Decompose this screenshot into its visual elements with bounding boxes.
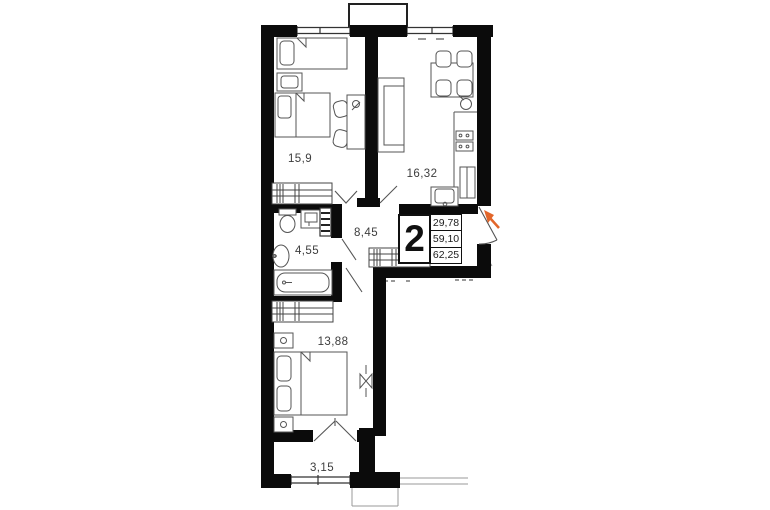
area-label-hallway: 8,45 xyxy=(354,227,378,239)
bedroom-wardrobe-icon xyxy=(272,301,333,322)
area-label-bedroom-1: 15,9 xyxy=(288,153,312,165)
rooms-count: 2 xyxy=(398,214,431,264)
apartment-summary-badge: 2 29,78 59,10 62,25 xyxy=(398,214,462,264)
nightstand-icon xyxy=(274,417,293,432)
nightstand-icon xyxy=(277,73,302,91)
child-bed-icon xyxy=(275,93,330,137)
bathroom-sink-icon xyxy=(272,245,289,267)
desk-icon xyxy=(332,95,365,149)
wardrobe-icon xyxy=(272,183,332,204)
area-label-bedroom-2: 13,88 xyxy=(318,336,349,348)
area-summary-row: 62,25 xyxy=(431,248,461,263)
toilet-icon xyxy=(279,209,296,233)
washing-machine-icon xyxy=(301,210,321,228)
bathtub-icon xyxy=(274,270,332,295)
area-summary-row: 59,10 xyxy=(431,231,461,247)
dining-table-icon xyxy=(431,51,473,97)
area-label-kitchen-living-room: 16,32 xyxy=(407,168,438,180)
entrance-arrow-icon xyxy=(484,210,499,228)
radiator-valve-icon xyxy=(360,365,372,397)
fridge-icon xyxy=(460,167,475,198)
top-balcony-outline xyxy=(349,4,407,27)
single-bed-icon xyxy=(277,38,347,69)
floor-plan-drawing xyxy=(0,0,770,510)
area-summary-table: 29,78 59,10 62,25 xyxy=(430,214,462,264)
double-bed-icon xyxy=(274,352,347,415)
kitchen-sink-icon xyxy=(431,187,458,206)
area-summary-row: 29,78 xyxy=(431,215,461,231)
nightstand-icon xyxy=(274,333,293,348)
sofa-icon xyxy=(378,78,404,152)
floor-plan: 15,9 16,32 8,45 4,55 13,88 3,15 2 29,78 … xyxy=(0,0,770,510)
area-label-bathroom: 4,55 xyxy=(295,245,319,257)
towel-rail-icon xyxy=(320,208,331,236)
stove-icon xyxy=(456,131,473,151)
area-label-balcony: 3,15 xyxy=(310,462,334,474)
